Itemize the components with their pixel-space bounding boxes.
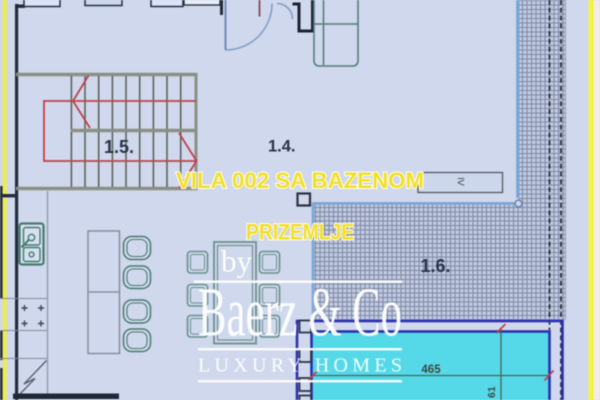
svg-text:465: 465	[421, 364, 441, 376]
svg-text:≥: ≥	[457, 175, 464, 190]
svg-text:61: 61	[486, 386, 498, 398]
svg-text:1.6.: 1.6.	[421, 256, 451, 276]
svg-text:Baerz & Co: Baerz & Co	[198, 275, 402, 352]
svg-text:VILA 002 SA BAZENOM: VILA 002 SA BAZENOM	[176, 168, 424, 193]
svg-text:PRIZEMLJE: PRIZEMLJE	[246, 220, 354, 245]
svg-text:1.5.: 1.5.	[104, 137, 134, 157]
svg-text:1.4.: 1.4.	[268, 138, 296, 156]
svg-text:by: by	[221, 244, 253, 279]
